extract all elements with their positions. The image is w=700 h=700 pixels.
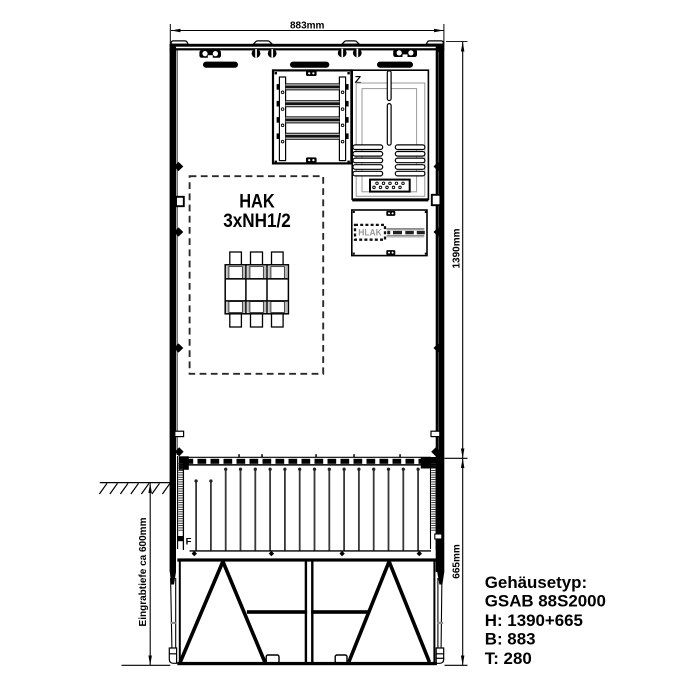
svg-text:HAK: HAK	[239, 192, 275, 213]
svg-text:Eingrabtiefe ca 600mm: Eingrabtiefe ca 600mm	[138, 517, 149, 626]
svg-text:H: 1390+665: H: 1390+665	[485, 611, 583, 630]
svg-text:T: 280: T: 280	[485, 649, 532, 668]
svg-text:B: 883: B: 883	[485, 629, 536, 648]
svg-text:F: F	[186, 536, 192, 547]
svg-text:GSAB 88S2000: GSAB 88S2000	[485, 591, 606, 610]
svg-text:Gehäusetyp:: Gehäusetyp:	[485, 573, 587, 592]
svg-text:3xNH1/2: 3xNH1/2	[223, 211, 291, 232]
svg-text:1390mm: 1390mm	[451, 228, 462, 268]
svg-text:HLAK: HLAK	[358, 227, 382, 237]
svg-text:665mm: 665mm	[451, 544, 462, 579]
